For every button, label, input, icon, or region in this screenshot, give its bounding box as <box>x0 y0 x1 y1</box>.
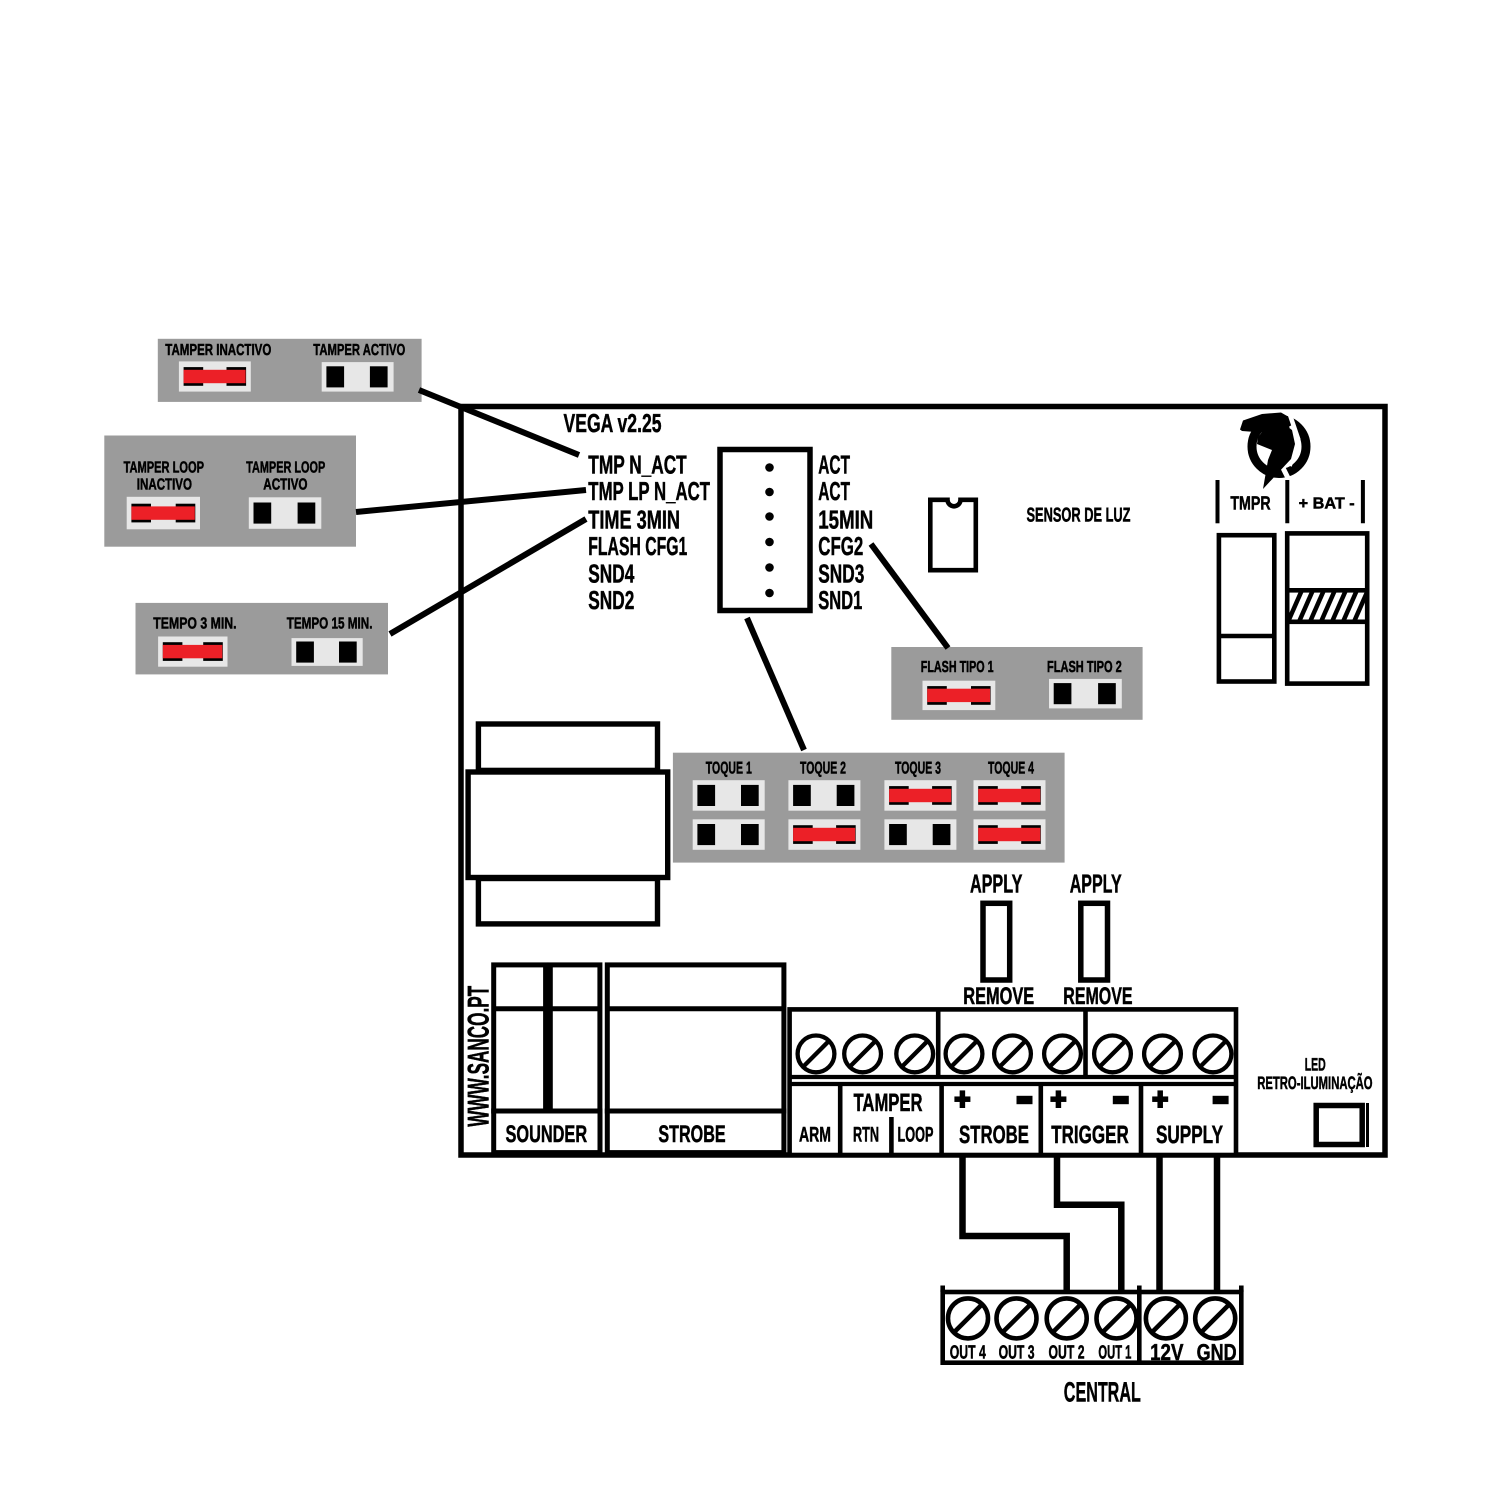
svg-text:TMPR: TMPR <box>1230 494 1271 515</box>
svg-text:SND1: SND1 <box>818 585 862 615</box>
svg-text:CFG2: CFG2 <box>818 531 863 561</box>
svg-text:LED: LED <box>1305 1055 1326 1075</box>
svg-text:TEMPO 3 MIN.: TEMPO 3 MIN. <box>153 615 236 632</box>
svg-text:TOQUE 4: TOQUE 4 <box>988 759 1034 778</box>
svg-text:SND2: SND2 <box>588 585 634 615</box>
svg-text:TAMPER: TAMPER <box>854 1089 923 1117</box>
svg-text:TAMPER LOOP: TAMPER LOOP <box>246 459 325 476</box>
svg-text:OUT 2: OUT 2 <box>1049 1343 1085 1364</box>
svg-text:APPLY: APPLY <box>970 869 1023 899</box>
svg-text:ACT: ACT <box>818 476 850 506</box>
svg-text:SND3: SND3 <box>818 558 864 588</box>
svg-text:VEGA v2.25: VEGA v2.25 <box>564 408 662 438</box>
svg-text:APPLY: APPLY <box>1070 869 1122 899</box>
svg-text:TEMPO 15 MIN.: TEMPO 15 MIN. <box>287 615 373 632</box>
svg-text:TRIGGER: TRIGGER <box>1051 1121 1129 1149</box>
svg-text:15MIN: 15MIN <box>818 504 873 534</box>
svg-text:FLASH TIPO 2: FLASH TIPO 2 <box>1047 659 1122 676</box>
svg-text:REMOVE: REMOVE <box>1063 983 1132 1010</box>
svg-text:LOOP: LOOP <box>898 1124 934 1147</box>
svg-text:REMOVE: REMOVE <box>963 983 1034 1010</box>
svg-text:RTN: RTN <box>853 1124 879 1147</box>
svg-text:TAMPER ACTIVO: TAMPER ACTIVO <box>313 342 405 359</box>
svg-text:TMP LP N_ACT: TMP LP N_ACT <box>588 476 710 506</box>
svg-text:12V: 12V <box>1150 1339 1184 1365</box>
svg-text:STROBE: STROBE <box>959 1121 1029 1149</box>
svg-text:TIME 3MIN: TIME 3MIN <box>588 504 680 534</box>
svg-text:TOQUE 1: TOQUE 1 <box>706 759 752 778</box>
svg-text:SENSOR DE LUZ: SENSOR DE LUZ <box>1027 504 1131 526</box>
svg-text:OUT 1: OUT 1 <box>1098 1343 1131 1364</box>
svg-text:TAMPER INACTIVO: TAMPER INACTIVO <box>165 342 271 359</box>
svg-text:FLASH TIPO 1: FLASH TIPO 1 <box>921 659 994 676</box>
svg-text:OUT 4: OUT 4 <box>950 1343 986 1364</box>
svg-text:STROBE: STROBE <box>658 1121 725 1148</box>
svg-text:SUPPLY: SUPPLY <box>1156 1121 1223 1149</box>
svg-text:FLASH CFG1: FLASH CFG1 <box>588 531 687 561</box>
svg-text:OUT 3: OUT 3 <box>999 1343 1035 1364</box>
svg-text:TAMPER LOOP: TAMPER LOOP <box>124 459 205 476</box>
svg-text:ACTIVO: ACTIVO <box>263 476 307 493</box>
svg-text:RETRO-ILUMINAÇÃO: RETRO-ILUMINAÇÃO <box>1257 1072 1372 1093</box>
svg-text:SOUNDER: SOUNDER <box>506 1121 588 1148</box>
svg-text:TOQUE 2: TOQUE 2 <box>800 759 846 778</box>
svg-text:CENTRAL: CENTRAL <box>1064 1377 1141 1408</box>
svg-text:TMP N_ACT: TMP N_ACT <box>588 449 686 479</box>
svg-text:SND4: SND4 <box>588 558 634 588</box>
svg-text:ACT: ACT <box>818 449 850 479</box>
svg-text:INACTIVO: INACTIVO <box>137 476 192 493</box>
svg-text:ARM: ARM <box>799 1124 831 1147</box>
svg-text:GND: GND <box>1197 1339 1237 1365</box>
svg-text:WWW.SANCO.PT: WWW.SANCO.PT <box>462 986 495 1127</box>
svg-text:TOQUE 3: TOQUE 3 <box>895 759 941 778</box>
svg-text:+ BAT -: + BAT - <box>1299 496 1355 513</box>
